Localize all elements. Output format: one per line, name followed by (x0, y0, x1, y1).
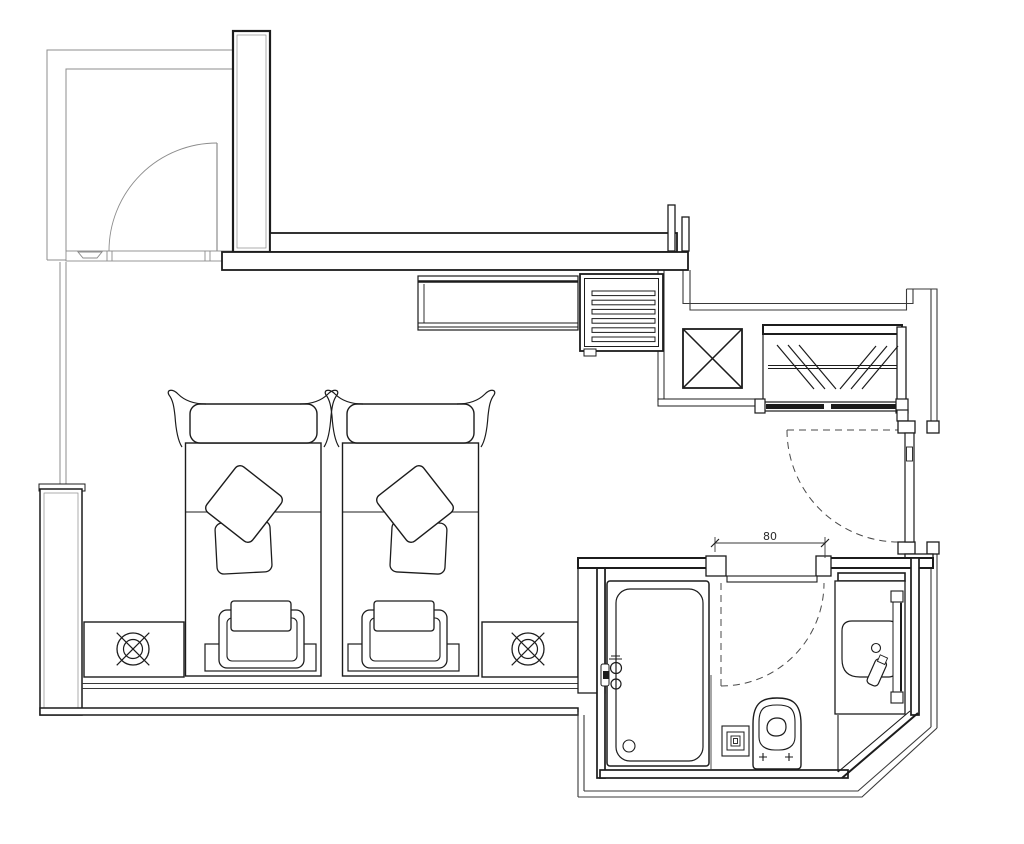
west-thin-wall (60, 262, 66, 484)
elevator-shaft (683, 329, 742, 388)
drain-outer (722, 726, 749, 756)
door-jamb (706, 556, 726, 576)
vestibule-outer-wall (47, 50, 233, 260)
bathtub-outline (607, 581, 709, 766)
mirror-bracket (891, 591, 903, 602)
sliding-door-hatch-right (840, 346, 898, 389)
twin-bed-right (325, 390, 495, 676)
bed-bench (348, 601, 459, 671)
door-jamb (927, 421, 939, 433)
mirror (893, 591, 901, 703)
toilet (753, 698, 801, 769)
south-wall-band (40, 708, 578, 715)
threshold-step (78, 252, 102, 258)
boundary-west (578, 712, 584, 797)
console-cabinet (418, 276, 578, 330)
bathtub (601, 581, 709, 766)
bathroom-door (706, 556, 831, 686)
vent-knob (584, 349, 596, 356)
nightstand-right (482, 622, 578, 677)
nightstand-outline (482, 622, 578, 677)
vestibule-threshold (66, 251, 232, 261)
door-jamb (816, 556, 831, 576)
dimension-80: 80 (711, 530, 829, 558)
sliding-panel-left (766, 404, 824, 409)
lobby-wall-band (658, 399, 763, 406)
door-jamb (898, 421, 915, 433)
sliding-panel-right (831, 404, 899, 409)
wall-stub (897, 410, 908, 421)
wardrobe (755, 325, 908, 413)
bath-south-wall (600, 770, 848, 778)
west-wall (40, 489, 82, 715)
bath-north-inner-band (838, 573, 905, 581)
bed-headboard (190, 404, 317, 443)
entry-column-wall (233, 31, 270, 252)
north-walls (222, 31, 689, 270)
entry-vestibule (47, 50, 233, 261)
nightstand-left (84, 622, 184, 677)
south-wall-inner-lines (82, 684, 597, 689)
bath-east-wall (911, 558, 919, 715)
wardrobe-right-side (897, 327, 906, 410)
floor-plan-drawing: 80 (0, 0, 1024, 844)
bathroom-door-swing-arc (721, 583, 824, 686)
door-jamb (927, 542, 939, 554)
bathroom-door-leaf (727, 576, 817, 582)
floor-drain (722, 726, 749, 756)
north-wall-lower-band (222, 252, 688, 270)
floor-plan-canvas: 80 (0, 0, 1024, 844)
twin-bed-left (168, 390, 338, 676)
drain-inner (731, 736, 740, 746)
door-jamb (898, 542, 915, 554)
vestibule-door-swing-arc (109, 143, 217, 251)
drain-mid (727, 732, 744, 750)
sliding-door-hatch-left (777, 345, 836, 389)
bench-cushion (231, 601, 291, 631)
dimension-label: 80 (763, 530, 777, 543)
vanity (835, 581, 905, 714)
bath-chamfer-outer (842, 713, 918, 778)
faucet-spout (603, 671, 609, 679)
vestibule-inner-wall (66, 69, 233, 251)
wall-end-tick-2 (682, 217, 689, 251)
mirror-bracket (891, 692, 903, 703)
wardrobe-top-track (763, 325, 902, 334)
wall-end-tick-1 (668, 205, 675, 251)
drain-center (734, 739, 738, 744)
entry-door-swing-arc (787, 430, 899, 542)
bench-cushion (374, 601, 434, 631)
toilet-outline (753, 698, 801, 769)
threshold-ticks (107, 251, 210, 261)
wardrobe-end-block-left (755, 399, 765, 413)
bed-bench (205, 601, 316, 671)
bath-north-wall-left (578, 558, 718, 568)
vent-grille (580, 274, 663, 356)
console-outline (418, 276, 578, 330)
wardrobe-rail (768, 366, 897, 369)
bed-headboard (347, 404, 474, 443)
north-wall-upper-band (270, 233, 677, 252)
